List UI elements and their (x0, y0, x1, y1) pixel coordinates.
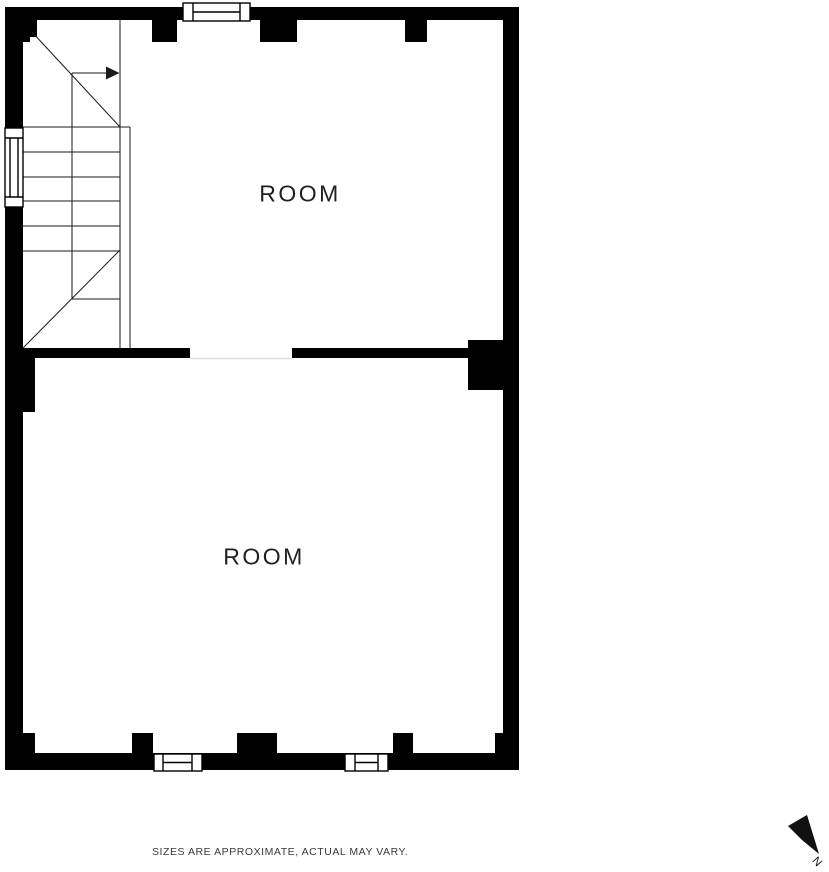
stair-break-line (32, 32, 120, 127)
walls (5, 7, 519, 770)
compass-north-label: N (809, 855, 823, 869)
wall-pier (237, 733, 277, 753)
north-arrow-icon: N (780, 806, 828, 870)
wall-pier (132, 733, 153, 753)
window-bottom-1 (154, 754, 202, 771)
room-label: ROOM (223, 544, 305, 571)
wall-pier (405, 20, 427, 42)
arrow-head (106, 67, 120, 80)
window-top (183, 3, 250, 21)
stair-direction-arrow-icon (72, 67, 120, 80)
floor-plan-drawing (0, 0, 829, 872)
wall-pier (495, 733, 503, 753)
window-bottom-2 (345, 754, 388, 771)
wall-bottom (5, 753, 519, 770)
wall-pier (23, 733, 35, 753)
wall-top (5, 7, 519, 20)
wall-pier (152, 20, 177, 42)
wall-corner-step (5, 37, 30, 42)
wall-pier (393, 733, 413, 753)
floor-plan-page: ROOM ROOM SIZES ARE APPROXIMATE, ACTUAL … (0, 0, 829, 872)
window-frame (5, 128, 23, 207)
wall-pier (260, 20, 297, 42)
windows (5, 3, 388, 771)
room-label: ROOM (259, 181, 341, 208)
chimney-block (468, 340, 506, 390)
wall-left-thick (5, 348, 35, 412)
window-left (5, 128, 23, 207)
disclaimer-text: SIZES ARE APPROXIMATE, ACTUAL MAY VARY. (152, 846, 408, 858)
compass-needle (788, 815, 819, 854)
dividing-wall-right (292, 348, 468, 358)
staircase (23, 20, 130, 348)
